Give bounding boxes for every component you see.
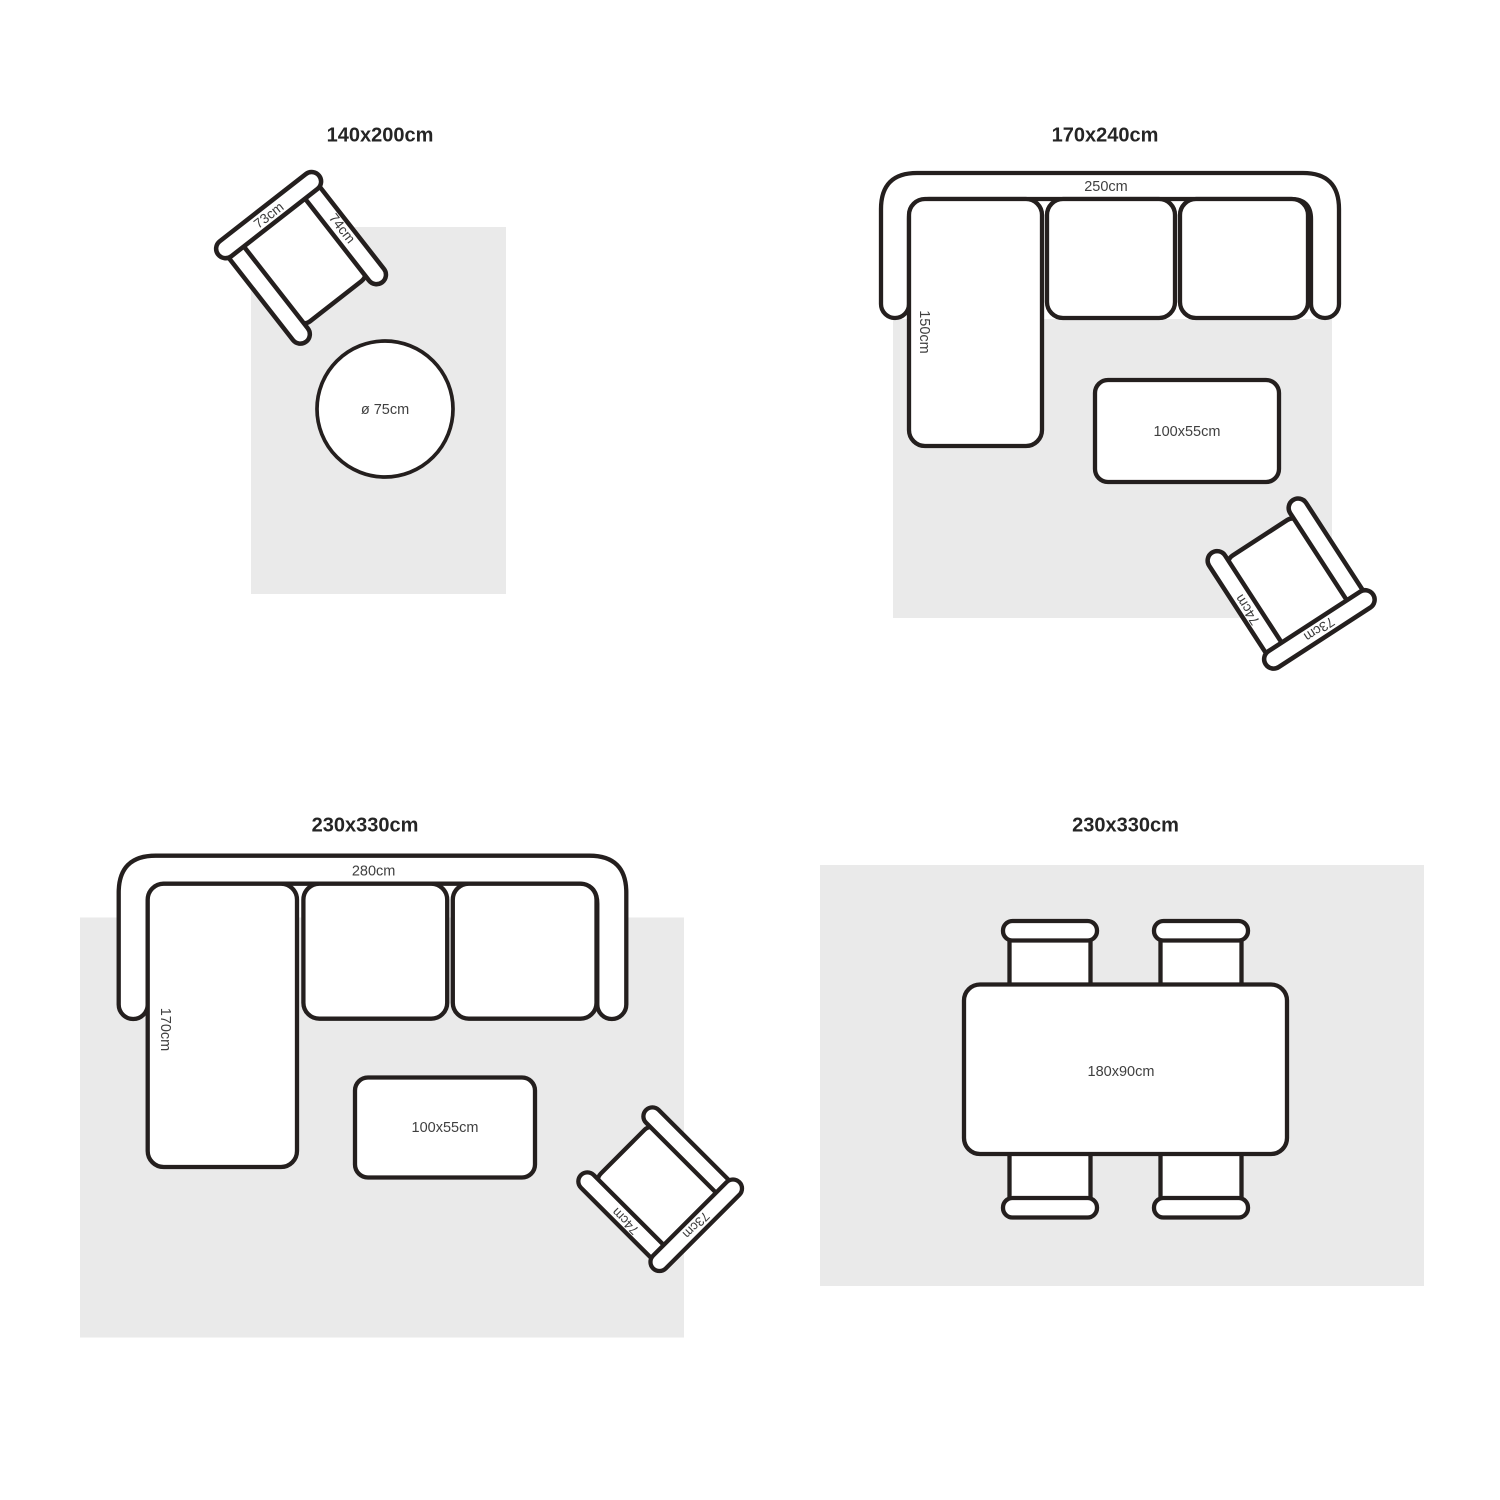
svg-text:ø 75cm: ø 75cm: [361, 402, 409, 418]
svg-text:170cm: 170cm: [157, 1008, 173, 1052]
svg-text:150cm: 150cm: [916, 310, 932, 354]
svg-text:280cm: 280cm: [352, 864, 396, 880]
svg-text:230x330cm: 230x330cm: [312, 815, 419, 837]
svg-text:100x55cm: 100x55cm: [412, 1120, 479, 1136]
svg-text:230x330cm: 230x330cm: [1072, 815, 1179, 837]
svg-text:140x200cm: 140x200cm: [327, 125, 434, 147]
svg-text:170x240cm: 170x240cm: [1052, 125, 1159, 147]
svg-text:180x90cm: 180x90cm: [1088, 1064, 1155, 1080]
svg-text:250cm: 250cm: [1084, 179, 1128, 195]
svg-text:100x55cm: 100x55cm: [1154, 424, 1221, 440]
